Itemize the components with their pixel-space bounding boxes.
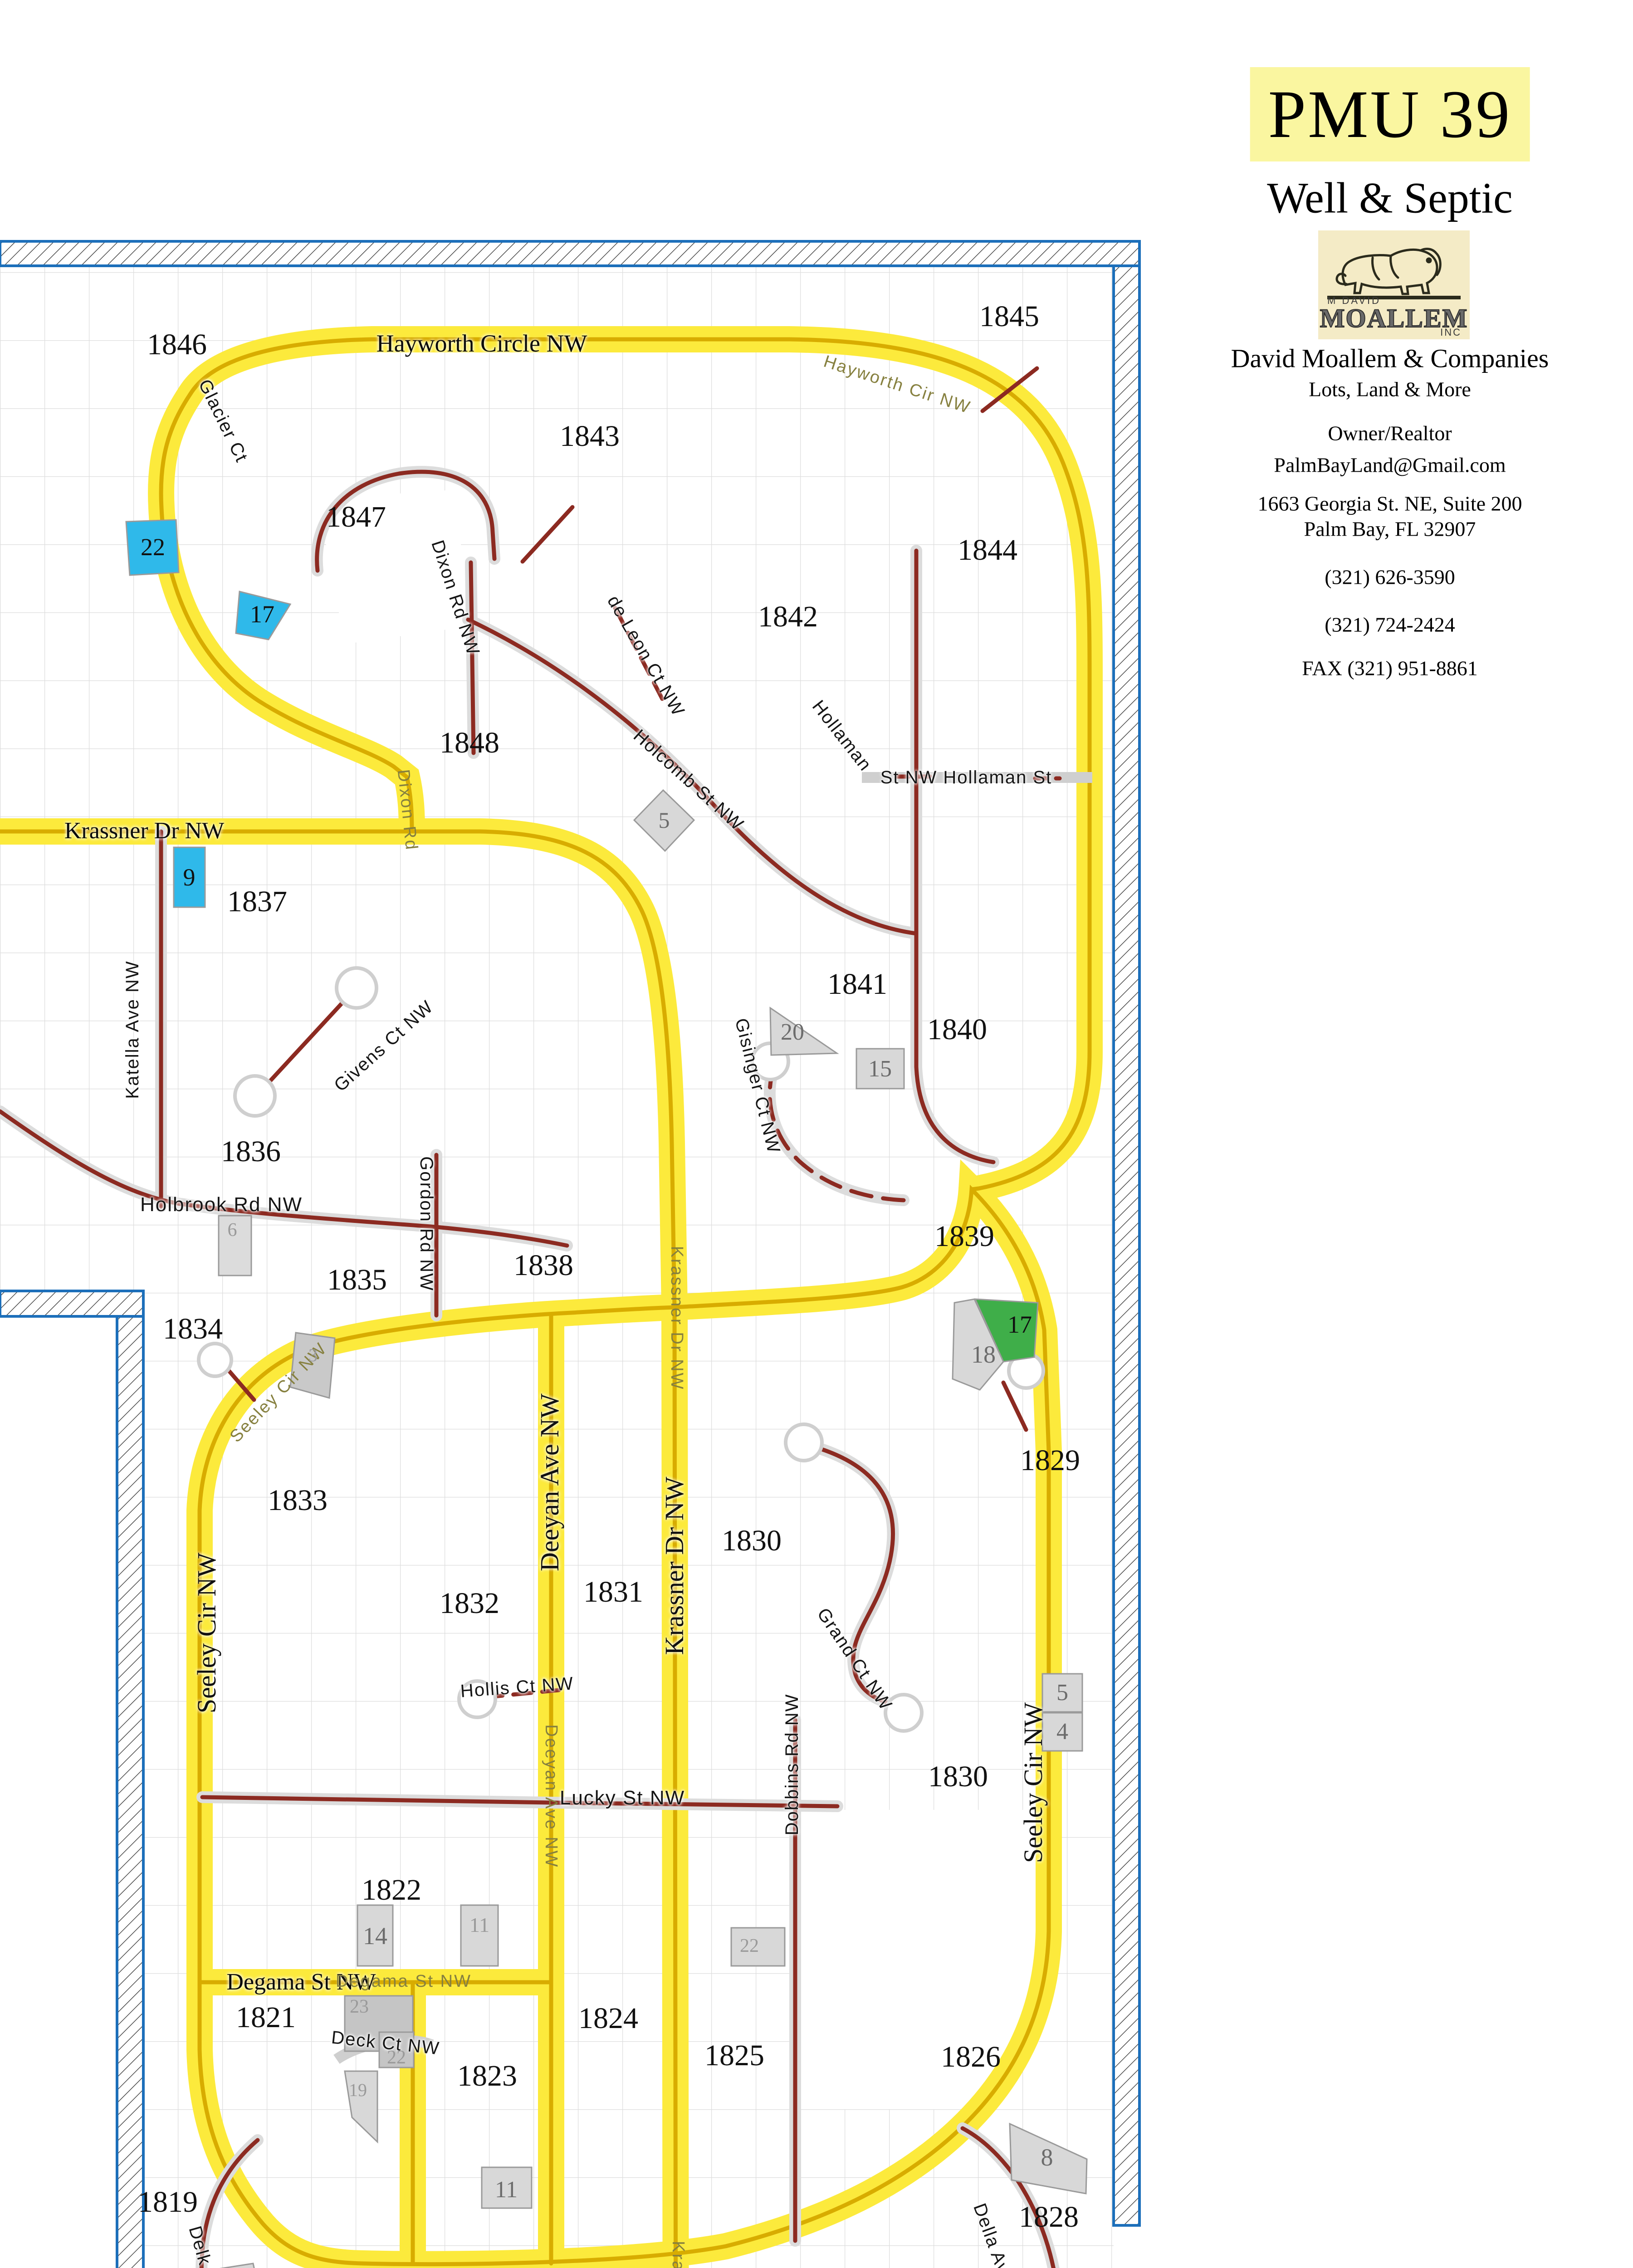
parcel-22-gray-1825 xyxy=(731,1928,785,1966)
parcel-11-gray-1823 xyxy=(482,2167,532,2208)
logo-inc: INC xyxy=(1440,327,1462,338)
phone-primary: (321) 626-3590 xyxy=(1325,565,1455,589)
parcel-9-blue xyxy=(174,847,205,907)
phone-secondary: (321) 724-2424 xyxy=(1325,613,1455,637)
lion-icon xyxy=(1318,230,1470,303)
pmu-title: PMU 39 xyxy=(1268,77,1512,152)
parcel-3-gray xyxy=(290,1333,335,1398)
parcel-6-gray xyxy=(219,1216,251,1276)
parcel-14-gray-1822 xyxy=(357,1905,393,1966)
pmu-title-box: PMU 39 xyxy=(1250,67,1530,161)
parcel-5-gray-seeley xyxy=(1042,1674,1082,1712)
road-dixon-rd-nw-south xyxy=(471,562,474,753)
parcel-15-gray-1841 xyxy=(856,1049,904,1089)
parcel-11-gray-1822 xyxy=(461,1905,498,1966)
parcel-22-blue xyxy=(126,520,179,575)
border-left-horizontal xyxy=(0,1291,143,1316)
map-canvas xyxy=(0,0,1633,2268)
border-top xyxy=(0,241,1139,266)
company-name: David Moallem & Companies xyxy=(1231,343,1549,374)
address-line-1: 1663 Georgia St. NE, Suite 200 xyxy=(1257,492,1522,516)
parcel-22-gray-degama xyxy=(379,2032,414,2068)
contact-email: PalmBayLand@Gmail.com xyxy=(1274,453,1506,477)
owner-role: Owner/Realtor xyxy=(1328,421,1452,445)
parcel-4-gray-seeley xyxy=(1042,1713,1082,1751)
fax-number: FAX (321) 951-8861 xyxy=(1302,656,1478,680)
address-line-2: Palm Bay, FL 32907 xyxy=(1304,517,1476,541)
company-tagline: Lots, Land & More xyxy=(1309,377,1471,401)
open-block-1847 xyxy=(318,490,472,644)
map-subtitle: Well & Septic xyxy=(1267,173,1513,223)
pmu-map-page: 1846184318451847184818441842184118401837… xyxy=(0,0,1633,2268)
company-logo: M DAVID MOALLEM INC xyxy=(1318,230,1470,339)
border-right xyxy=(1114,266,1139,2225)
border-left-vertical xyxy=(117,1316,143,2268)
